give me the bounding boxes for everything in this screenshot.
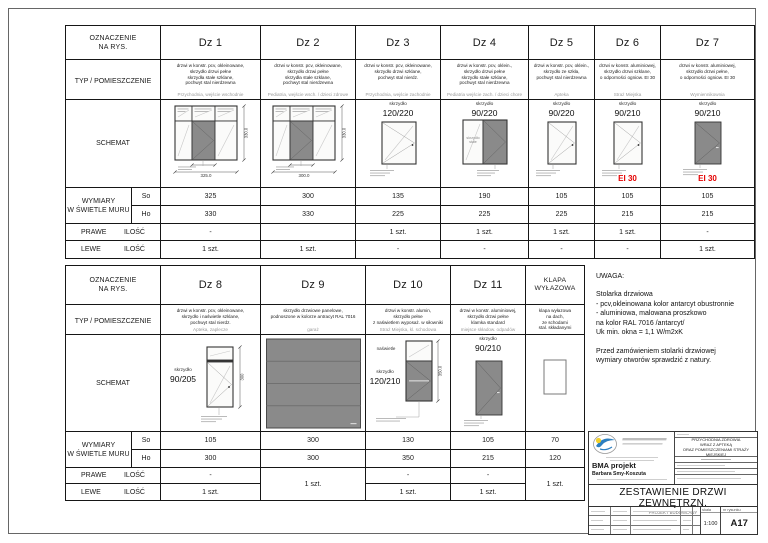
left-qty: 1 szt. (661, 241, 754, 258)
door-description: skrzydło drzwiowe panelowe, podnoszone w… (261, 308, 365, 320)
header-schematic: SCHEMAT (66, 335, 160, 432)
company-logo (590, 432, 674, 457)
leaf-label: skrzydło90/220 (529, 103, 594, 118)
ho-value: 225 (441, 206, 528, 224)
qty-label: ILOŚĆ (124, 246, 145, 253)
qty-label: ILOŚĆ (124, 229, 145, 236)
so-value: 190 (441, 188, 528, 206)
door-description: drzwi w konstr. aluminiowej, skrzydło dr… (451, 308, 525, 325)
door-column-dz-7: Dz 7drzwi w konstr. aluminiowej, skrzydł… (661, 26, 754, 258)
qty-value: 1 szt. (526, 468, 584, 500)
door-schematic: skrzydło90/220skrzydło stałe (441, 100, 528, 188)
door-type-cell: drzwi w konstr. pcv, okleinowane, skrzyd… (161, 60, 260, 100)
header-designation: OZNACZENIE NA RYS. (66, 26, 160, 60)
so-value: 130 (366, 432, 450, 450)
door-location: Straż Miejska (595, 92, 660, 97)
door-location: Przychodnia, wejście zachodnie (356, 92, 440, 97)
door-id: Dz 10 (366, 266, 450, 305)
header-type-room: TYP / POMIESZCZENIE (66, 60, 160, 100)
door-description: drzwi w konstr. aluminiowej, skrzydło dr… (661, 63, 754, 80)
door-schematic: skrzydło90/210EI 30 (661, 100, 754, 188)
company-name: BMA projekt (589, 461, 674, 470)
door-type-cell: drzwi w konstr. pcv, okleinowane, skrzyd… (356, 60, 440, 100)
so-value: 105 (161, 432, 260, 450)
door-description: drzwi w konstr. aluminiowej, skrzydło dr… (595, 63, 660, 80)
door-column-dz-4: Dz 4drzwi w konstr. pcv, oklein., skrzyd… (441, 26, 529, 258)
door-schedule-table-top: OZNACZENIE NA RYS. TYP / POMIESZCZENIE S… (65, 25, 755, 259)
header-left-qty: LEWE ILOŚĆ (66, 484, 160, 500)
door-schematic: skrzydło90/210 (451, 335, 525, 432)
door-location: Apteka (529, 92, 594, 97)
door-schematic: 350.0naświetleskrzydło120/210 (366, 335, 450, 432)
left-qty: - (441, 241, 528, 258)
door-schematic (261, 335, 365, 432)
dimensions-label: WYMIARY W ŚWIETLE MURU (66, 441, 131, 459)
fire-rating: EI 30 (661, 174, 754, 183)
door-type-cell: drzwi w konstr. pcv, oklein., skrzydło d… (441, 60, 528, 100)
door-schematic: 330.0325.0 (161, 100, 260, 188)
header-designation: OZNACZENIE NA RYS. (66, 266, 160, 305)
so-label: So (132, 432, 160, 450)
so-value: 325 (161, 188, 260, 206)
title-block: BMA projekt Barbara Smy-Koszuta PRZYCHOD… (588, 431, 758, 535)
door-column-klapa: KLAPAWYŁAZOWAklapa wyłazowa na dach, ze … (526, 266, 584, 500)
signature-row (675, 475, 757, 482)
door-type-cell: klapa wyłazowa na dach, ze schodami stal… (526, 305, 584, 335)
right-qty: 1 szt. (356, 224, 440, 241)
right-qty: - (366, 468, 450, 484)
door-location: Wymiennikownia (661, 92, 754, 97)
door-id: KLAPAWYŁAZOWA (526, 266, 584, 305)
notes-body: Stolarka drzwiowa - pcv,okleinowana kolo… (596, 290, 764, 365)
door-id: Dz 9 (261, 266, 365, 305)
door-column-dz-10: Dz 10drzwi w konstr. alumin, skrzydło pe… (366, 266, 451, 500)
drawing-number: A17 (721, 513, 757, 534)
door-column-dz-1: Dz 1drzwi w konstr. pcv, okleinowane, sk… (161, 26, 261, 258)
qty-label: ILOŚĆ (124, 489, 145, 496)
door-type-cell: drzwi w konstr. pcv, okleinowane, skrzyd… (161, 305, 260, 335)
right-qty (261, 224, 355, 241)
right-qty: - (161, 468, 260, 484)
right-label: PRAWE (81, 472, 106, 479)
svg-text:325.0: 325.0 (201, 173, 213, 178)
left-qty: 1 szt. (451, 484, 525, 500)
ho-value: 215 (661, 206, 754, 224)
address-bar (597, 479, 667, 480)
header-right-qty: PRAWE ILOŚĆ (66, 468, 160, 484)
ho-value: 330 (161, 206, 260, 224)
leaf-label: skrzydło120/210 (366, 371, 404, 386)
notes-block: UWAGA: Stolarka drzwiowa - pcv,okleinowa… (596, 272, 764, 366)
left-label: LEWE (81, 489, 101, 496)
so-value: 300 (261, 188, 355, 206)
header-type-room: TYP / POMIESZCZENIE (66, 305, 160, 335)
door-schematic: skrzydło120/220 (356, 100, 440, 188)
door-location: Apteka, zaplecze (161, 327, 260, 332)
header-left-qty: LEWE ILOŚĆ (66, 241, 160, 258)
right-qty: - (161, 224, 260, 241)
left-qty: 1 szt. (261, 241, 355, 258)
right-qty: 1 szt. (529, 224, 594, 241)
title-block-header: BMA projekt Barbara Smy-Koszuta PRZYCHOD… (589, 432, 757, 485)
scale-cell: skala 1:100 (701, 507, 722, 534)
door-id: Dz 1 (161, 26, 260, 60)
designer-name: Barbara Smy-Koszuta (589, 471, 674, 477)
ho-value: 225 (356, 206, 440, 224)
door-location: Straż Miejska, kl. schodowa (366, 327, 450, 332)
svg-text:300: 300 (240, 373, 245, 381)
ho-value: 215 (451, 450, 525, 468)
leaf-label: skrzydło90/220 (441, 103, 528, 118)
so-value: 300 (261, 432, 365, 450)
ho-label: Ho (132, 450, 160, 467)
left-label: LEWE (81, 246, 101, 253)
left-qty: 1 szt. (161, 241, 260, 258)
leaf-label: skrzydło90/210 (661, 103, 754, 118)
right-label: PRAWE (81, 229, 106, 236)
drawing-number-cell: nr rysunku A17 (721, 507, 757, 534)
door-schematic (526, 335, 584, 432)
project-title-row: PRZYCHODNIA ZDROWIA WRAZ Z APTEKĄ ORAZ P… (675, 438, 757, 457)
company-subtext-bar (606, 457, 658, 458)
right-qty: 1 szt. (441, 224, 528, 241)
leaf-label: skrzydło90/210 (595, 103, 660, 118)
door-type-cell: drzwi w konstr. aluminiowej, skrzydło dr… (661, 60, 754, 100)
svg-text:350.0: 350.0 (438, 365, 443, 376)
qty-label: ILOŚĆ (124, 472, 145, 479)
door-id: Dz 5 (529, 26, 594, 60)
fire-rating: EI 30 (595, 174, 660, 183)
header-dimensions: WYMIARY W ŚWIETLE MURU So Ho (66, 188, 160, 224)
project-panel: PRZYCHODNIA ZDROWIA WRAZ Z APTEKĄ ORAZ P… (675, 432, 757, 484)
door-column-dz-9: Dz 9skrzydło drzwiowe panelowe, podnoszo… (261, 266, 366, 500)
svg-text:300.0: 300.0 (299, 173, 311, 178)
company-panel: BMA projekt Barbara Smy-Koszuta (589, 432, 675, 484)
ho-value: 225 (529, 206, 594, 224)
so-ho-subcolumn: So Ho (131, 188, 160, 223)
door-column-dz-8: Dz 8drzwi w konstr. pcv, okleinowane, sk… (161, 266, 261, 500)
left-qty: - (529, 241, 594, 258)
door-column-dz-5: Dz 5drzwi w konstr. pcv, oklein., skrzyd… (529, 26, 595, 258)
drawing-title-section: ZESTAWIENIE DRZWI ZEWNĘTRZN. PROJEKT BUD… (589, 485, 757, 507)
drawing-title: ZESTAWIENIE DRZWI ZEWNĘTRZN. (589, 487, 757, 509)
door-description: drzwi w konstr. pcv, okleinowane, skrzyd… (161, 308, 260, 325)
door-id: Dz 2 (261, 26, 355, 60)
svg-text:330.0: 330.0 (244, 127, 249, 138)
leaf-label: skrzydło90/210 (451, 338, 525, 353)
signature-grid (589, 507, 701, 534)
door-description: drzwi w konstr. alumin, skrzydło pełne z… (366, 308, 450, 325)
so-value: 105 (451, 432, 525, 450)
ho-value: 215 (595, 206, 660, 224)
door-schedule-table-bottom: OZNACZENIE NA RYS. TYP / POMIESZCZENIE S… (65, 265, 585, 501)
so-ho-subcolumn: So Ho (131, 432, 160, 467)
notes-title: UWAGA: (596, 272, 764, 281)
signature-grid-section: skala 1:100 nr rysunku A17 (589, 507, 757, 534)
door-location: Przychodnia, wejście wschodnie (161, 92, 260, 97)
scale-value: 1:100 (701, 513, 721, 534)
door-schematic: 330.0300.0 (261, 100, 355, 188)
door-schematic: 300skrzydło90/205 (161, 335, 260, 432)
door-location: miejsce składow. odpadów (451, 327, 525, 332)
ho-value: 300 (161, 450, 260, 468)
svg-text:330.0: 330.0 (342, 127, 347, 138)
right-qty: 1 szt. (595, 224, 660, 241)
so-value: 70 (526, 432, 584, 450)
left-qty: - (595, 241, 660, 258)
door-type-cell: skrzydło drzwiowe panelowe, podnoszone w… (261, 305, 365, 335)
door-description: drzwi w konstr. pcv, oklein., skrzydło d… (441, 63, 528, 86)
door-id: Dz 7 (661, 26, 754, 60)
ho-value: 120 (526, 450, 584, 468)
ho-label: Ho (132, 206, 160, 223)
label-column: OZNACZENIE NA RYS. TYP / POMIESZCZENIE S… (66, 26, 161, 258)
so-value: 105 (529, 188, 594, 206)
leaf-label: skrzydło90/205 (165, 369, 201, 384)
dimensions-label: WYMIARY W ŚWIETLE MURU (66, 197, 131, 215)
door-schematic: skrzydło90/220 (529, 100, 594, 188)
door-column-dz-11: Dz 11drzwi w konstr. aluminiowej, skrzyd… (451, 266, 526, 500)
header-schematic: SCHEMAT (66, 100, 160, 188)
so-value: 105 (661, 188, 754, 206)
door-id: Dz 4 (441, 26, 528, 60)
door-schematic: skrzydło90/210EI 30 (595, 100, 660, 188)
door-column-dz-6: Dz 6drzwi w konstr. aluminiowej, skrzydł… (595, 26, 661, 258)
left-qty: 1 szt. (161, 484, 260, 500)
qty-value: 1 szt. (261, 468, 365, 500)
door-type-cell: drzwi w konstr. alumin, skrzydło pełne z… (366, 305, 450, 335)
door-description: drzwi w konstr. pcv, okleinowane, skrzyd… (261, 63, 355, 86)
drawing-sheet: { "top_table": { "labels": { "designatio… (0, 0, 768, 543)
ho-value: 330 (261, 206, 355, 224)
left-qty: 1 szt. (366, 484, 450, 500)
ho-value: 300 (261, 450, 365, 468)
door-description: drzwi w konstr. pcv, okleinowane, skrzyd… (356, 63, 440, 80)
right-qty: - (661, 224, 754, 241)
door-type-cell: drzwi w konstr. aluminiowej, skrzydło dr… (595, 60, 660, 100)
door-type-cell: drzwi w konstr. pcv, oklein., skrzydło z… (529, 60, 594, 100)
so-value: 105 (595, 188, 660, 206)
fixed-panel-label: skrzydło stałe (463, 136, 483, 144)
door-id: Dz 3 (356, 26, 440, 60)
leaf-label: skrzydło120/220 (356, 103, 440, 118)
door-column-dz-2: Dz 2drzwi w konstr. pcv, okleinowane, sk… (261, 26, 356, 258)
door-id: Dz 11 (451, 266, 525, 305)
door-location: garaż (261, 327, 365, 332)
label-column: OZNACZENIE NA RYS. TYP / POMIESZCZENIE S… (66, 266, 161, 500)
door-description: drzwi w konstr. pcv, oklein., skrzydło z… (529, 63, 594, 80)
door-id: Dz 8 (161, 266, 260, 305)
so-label: So (132, 188, 160, 206)
transom-label: naświetle (368, 347, 404, 351)
door-id: Dz 6 (595, 26, 660, 60)
right-qty: - (451, 468, 525, 484)
header-right-qty: PRAWE ILOŚĆ (66, 224, 160, 241)
door-location: Pediatria, wejście wsch. / dzieci zdrowe (261, 92, 355, 97)
project-title: PRZYCHODNIA ZDROWIA WRAZ Z APTEKĄ ORAZ P… (677, 437, 755, 457)
door-type-cell: drzwi w konstr. aluminiowej, skrzydło dr… (451, 305, 525, 335)
door-type-cell: drzwi w konstr. pcv, okleinowane, skrzyd… (261, 60, 355, 100)
door-column-dz-3: Dz 3drzwi w konstr. pcv, okleinowane, sk… (356, 26, 441, 258)
door-description: drzwi w konstr. pcv, okleinowane, skrzyd… (161, 63, 260, 86)
ho-value: 350 (366, 450, 450, 468)
so-value: 135 (356, 188, 440, 206)
door-location: Pediatria wejście zach. / dzieci chore (441, 92, 528, 97)
door-description: klapa wyłazowa na dach, ze schodami stal… (526, 308, 584, 331)
left-qty: - (356, 241, 440, 258)
header-dimensions: WYMIARY W ŚWIETLE MURU So Ho (66, 432, 160, 468)
